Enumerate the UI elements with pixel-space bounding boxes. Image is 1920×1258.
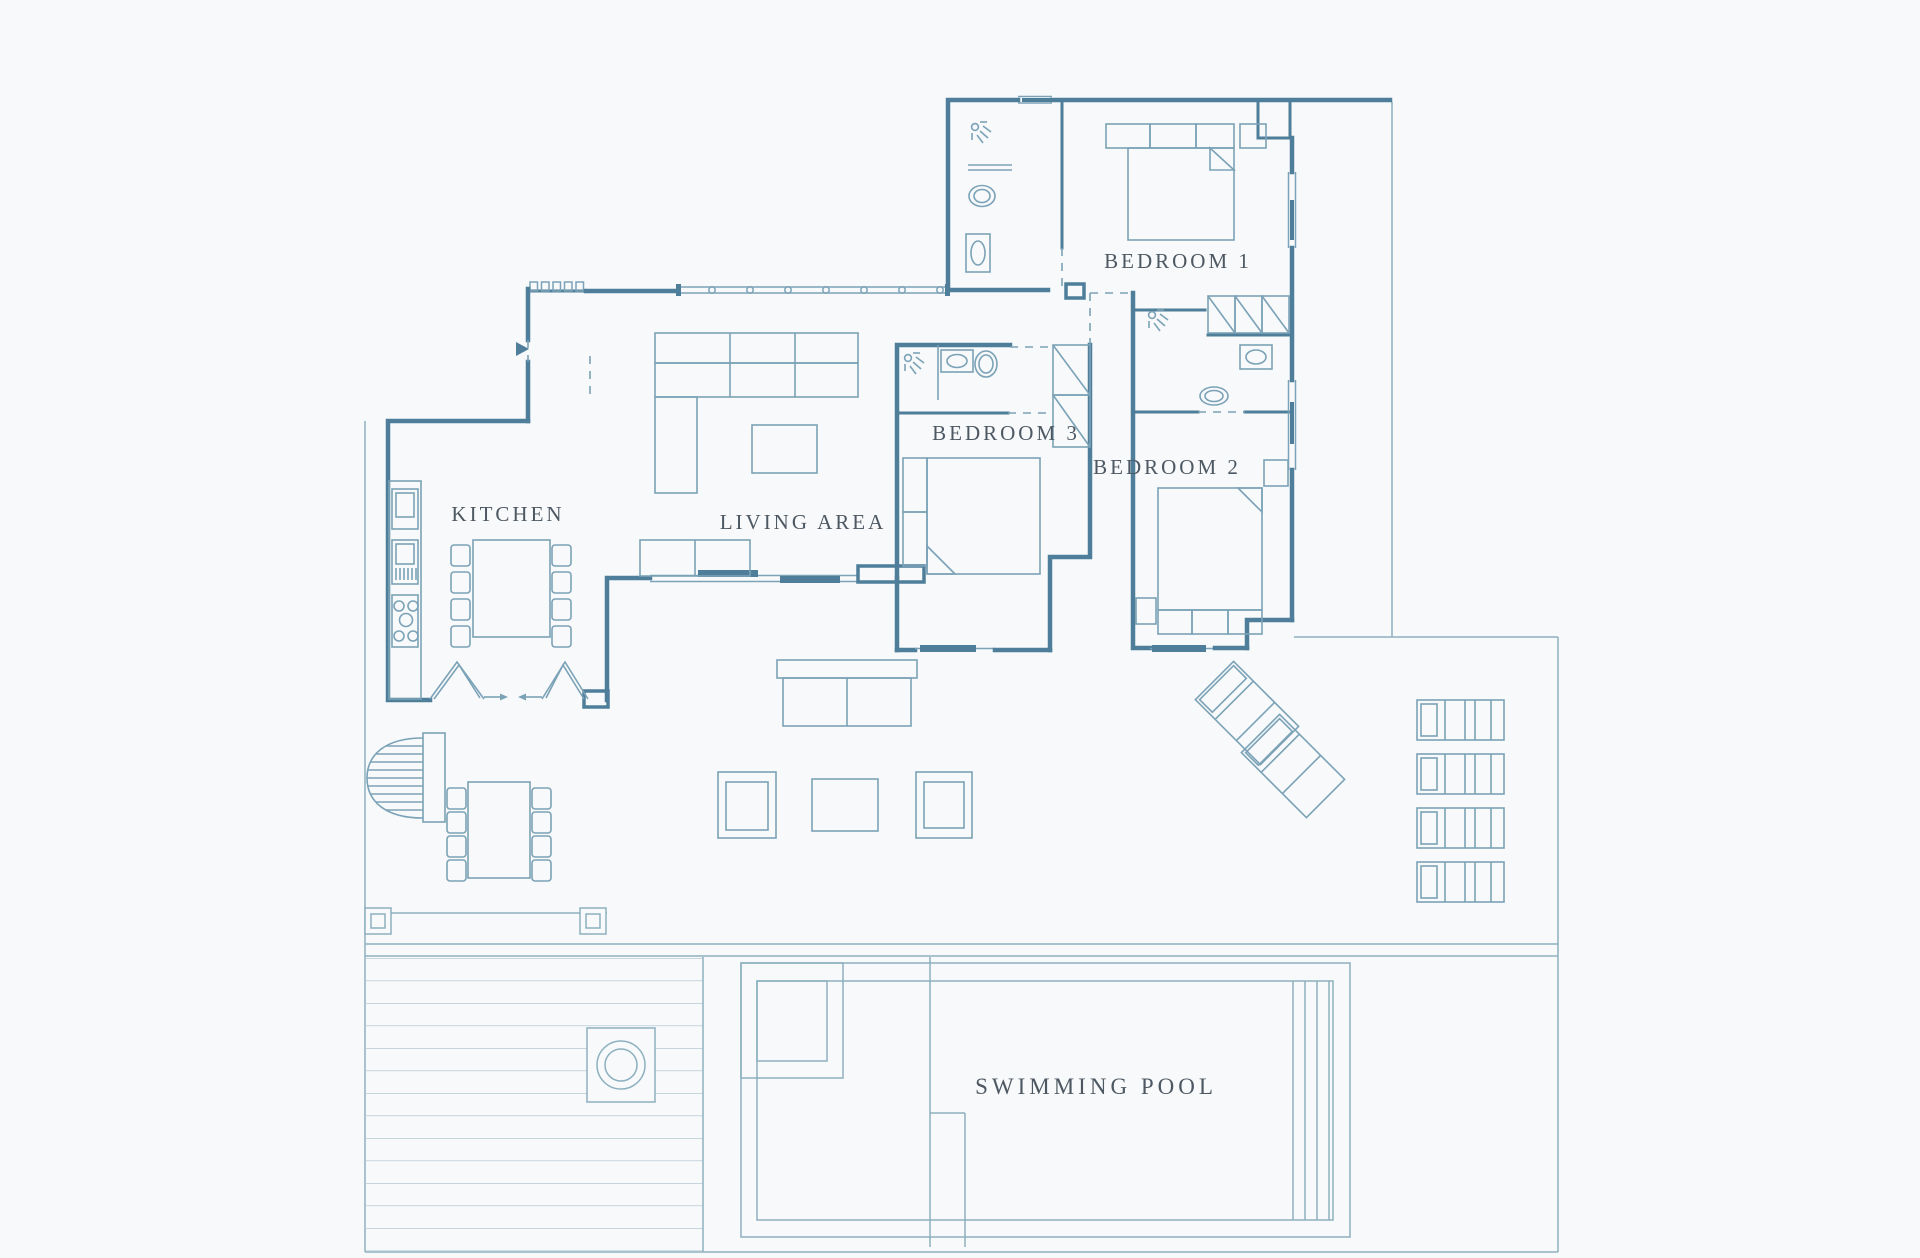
kitchen-sink-icon [392,489,418,529]
kitchen-label: KITCHEN [451,502,564,526]
shower-icon [972,122,991,143]
stove-icon [392,595,418,647]
terrace-post [580,908,606,934]
sliding-door-panel [920,645,976,652]
bathroom-2 [1149,310,1272,405]
bathroom-3 [905,345,997,400]
bathroom-1 [966,122,1012,272]
coffee-table-icon [752,425,817,473]
bed-3-icon [903,458,1040,574]
nightstand-icon [1136,598,1156,624]
kitchen-dining-set [451,540,571,647]
living-sofa-icon [655,333,858,493]
sliding-door-panel [1152,645,1206,652]
toilet-icon [1200,387,1228,405]
wall-pier [858,566,924,582]
bed-2-icon [1136,460,1288,634]
bifold-doors [430,662,588,701]
pool-steps [1293,981,1329,1220]
jacuzzi-icon [597,1041,645,1089]
outdoor-coffee-table-icon [812,779,878,831]
bed-1-icon [1106,124,1266,240]
bedroom-3-label: BEDROOM 3 [932,421,1080,445]
shower-icon [905,353,924,374]
outdoor-curved-stair-icon [360,733,445,822]
nightstand-icon [1264,460,1288,486]
house-walls [388,100,1390,707]
oven-icon [392,540,418,584]
kitchen-table-icon [473,540,550,637]
floor-plan-drawing: SWIMMING POOL [0,0,1920,1258]
shower-icon [1149,310,1168,331]
terrace-post [365,908,391,934]
outdoor-dining-table-icon [468,782,530,878]
sliding-door-panel [780,576,840,583]
sink-icon [941,350,973,372]
toilet-icon [975,351,997,377]
outdoor-dining-set [447,782,551,881]
outdoor-sofa-icon [777,660,917,726]
toilet-icon [969,186,995,207]
wood-deck [366,957,703,1252]
living-area-label: LIVING AREA [720,510,887,534]
door-post [1066,284,1084,298]
kitchen-counter [389,481,421,699]
sun-loungers-right [1417,700,1504,902]
swimming-pool-area: SWIMMING POOL [741,957,1350,1247]
sink-icon [1240,345,1272,369]
swimming-pool-label: SWIMMING POOL [975,1074,1217,1099]
floor-plan-page: SWIMMING POOL [0,0,1920,1258]
sink-icon [966,234,990,272]
bedroom-1-label: BEDROOM 1 [1104,249,1252,273]
pool-outer [741,963,1350,1237]
bedroom-2-label: BEDROOM 2 [1093,455,1241,479]
sun-loungers-diagonal [1195,661,1344,817]
outdoor-armchairs [718,772,972,838]
entry-door-marker [516,342,529,356]
